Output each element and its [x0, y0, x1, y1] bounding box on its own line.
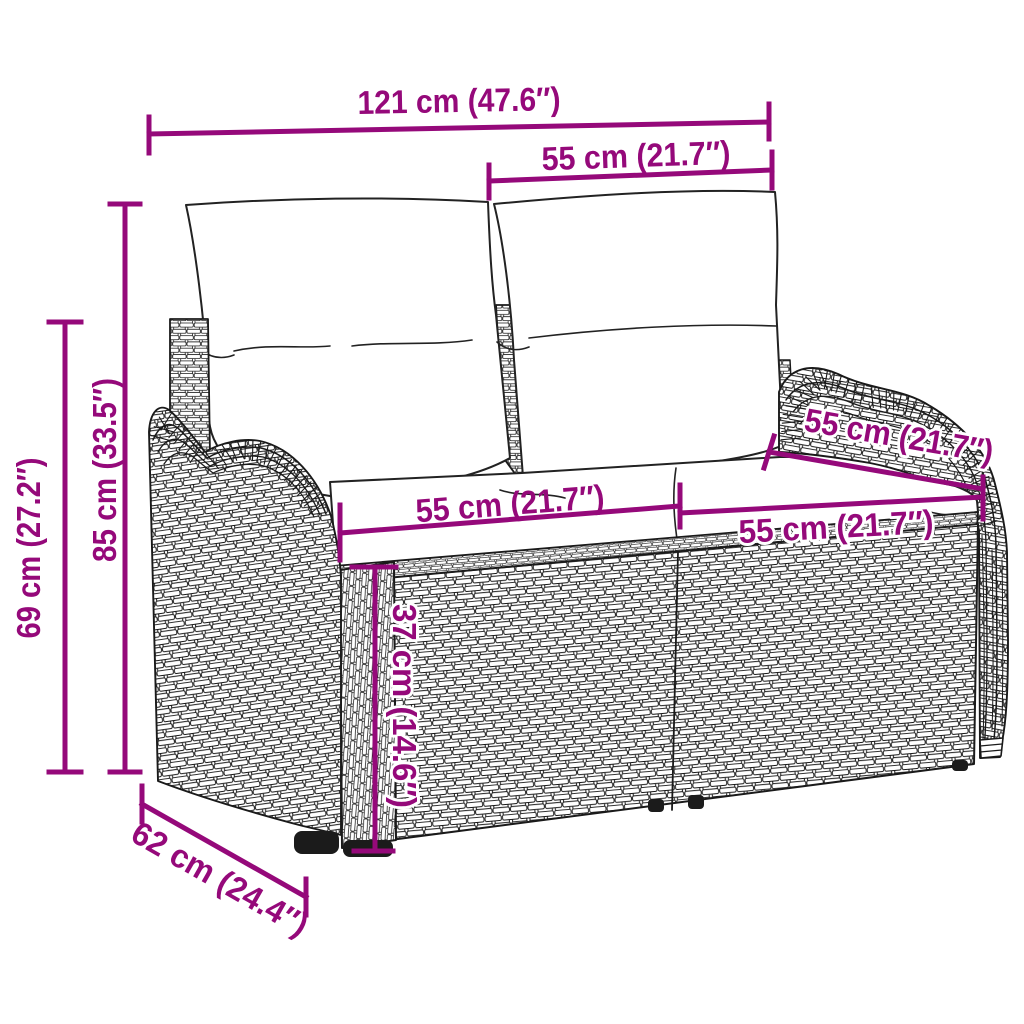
svg-text:37 cm (14.6″): 37 cm (14.6″)	[386, 604, 423, 808]
svg-text:69 cm (27.2″): 69 cm (27.2″)	[10, 458, 47, 639]
svg-text:55 cm (21.7″): 55 cm (21.7″)	[541, 134, 731, 178]
svg-text:85 cm (33.5″): 85 cm (33.5″)	[86, 378, 123, 562]
svg-text:121 cm (47.6″): 121 cm (47.6″)	[357, 80, 561, 121]
